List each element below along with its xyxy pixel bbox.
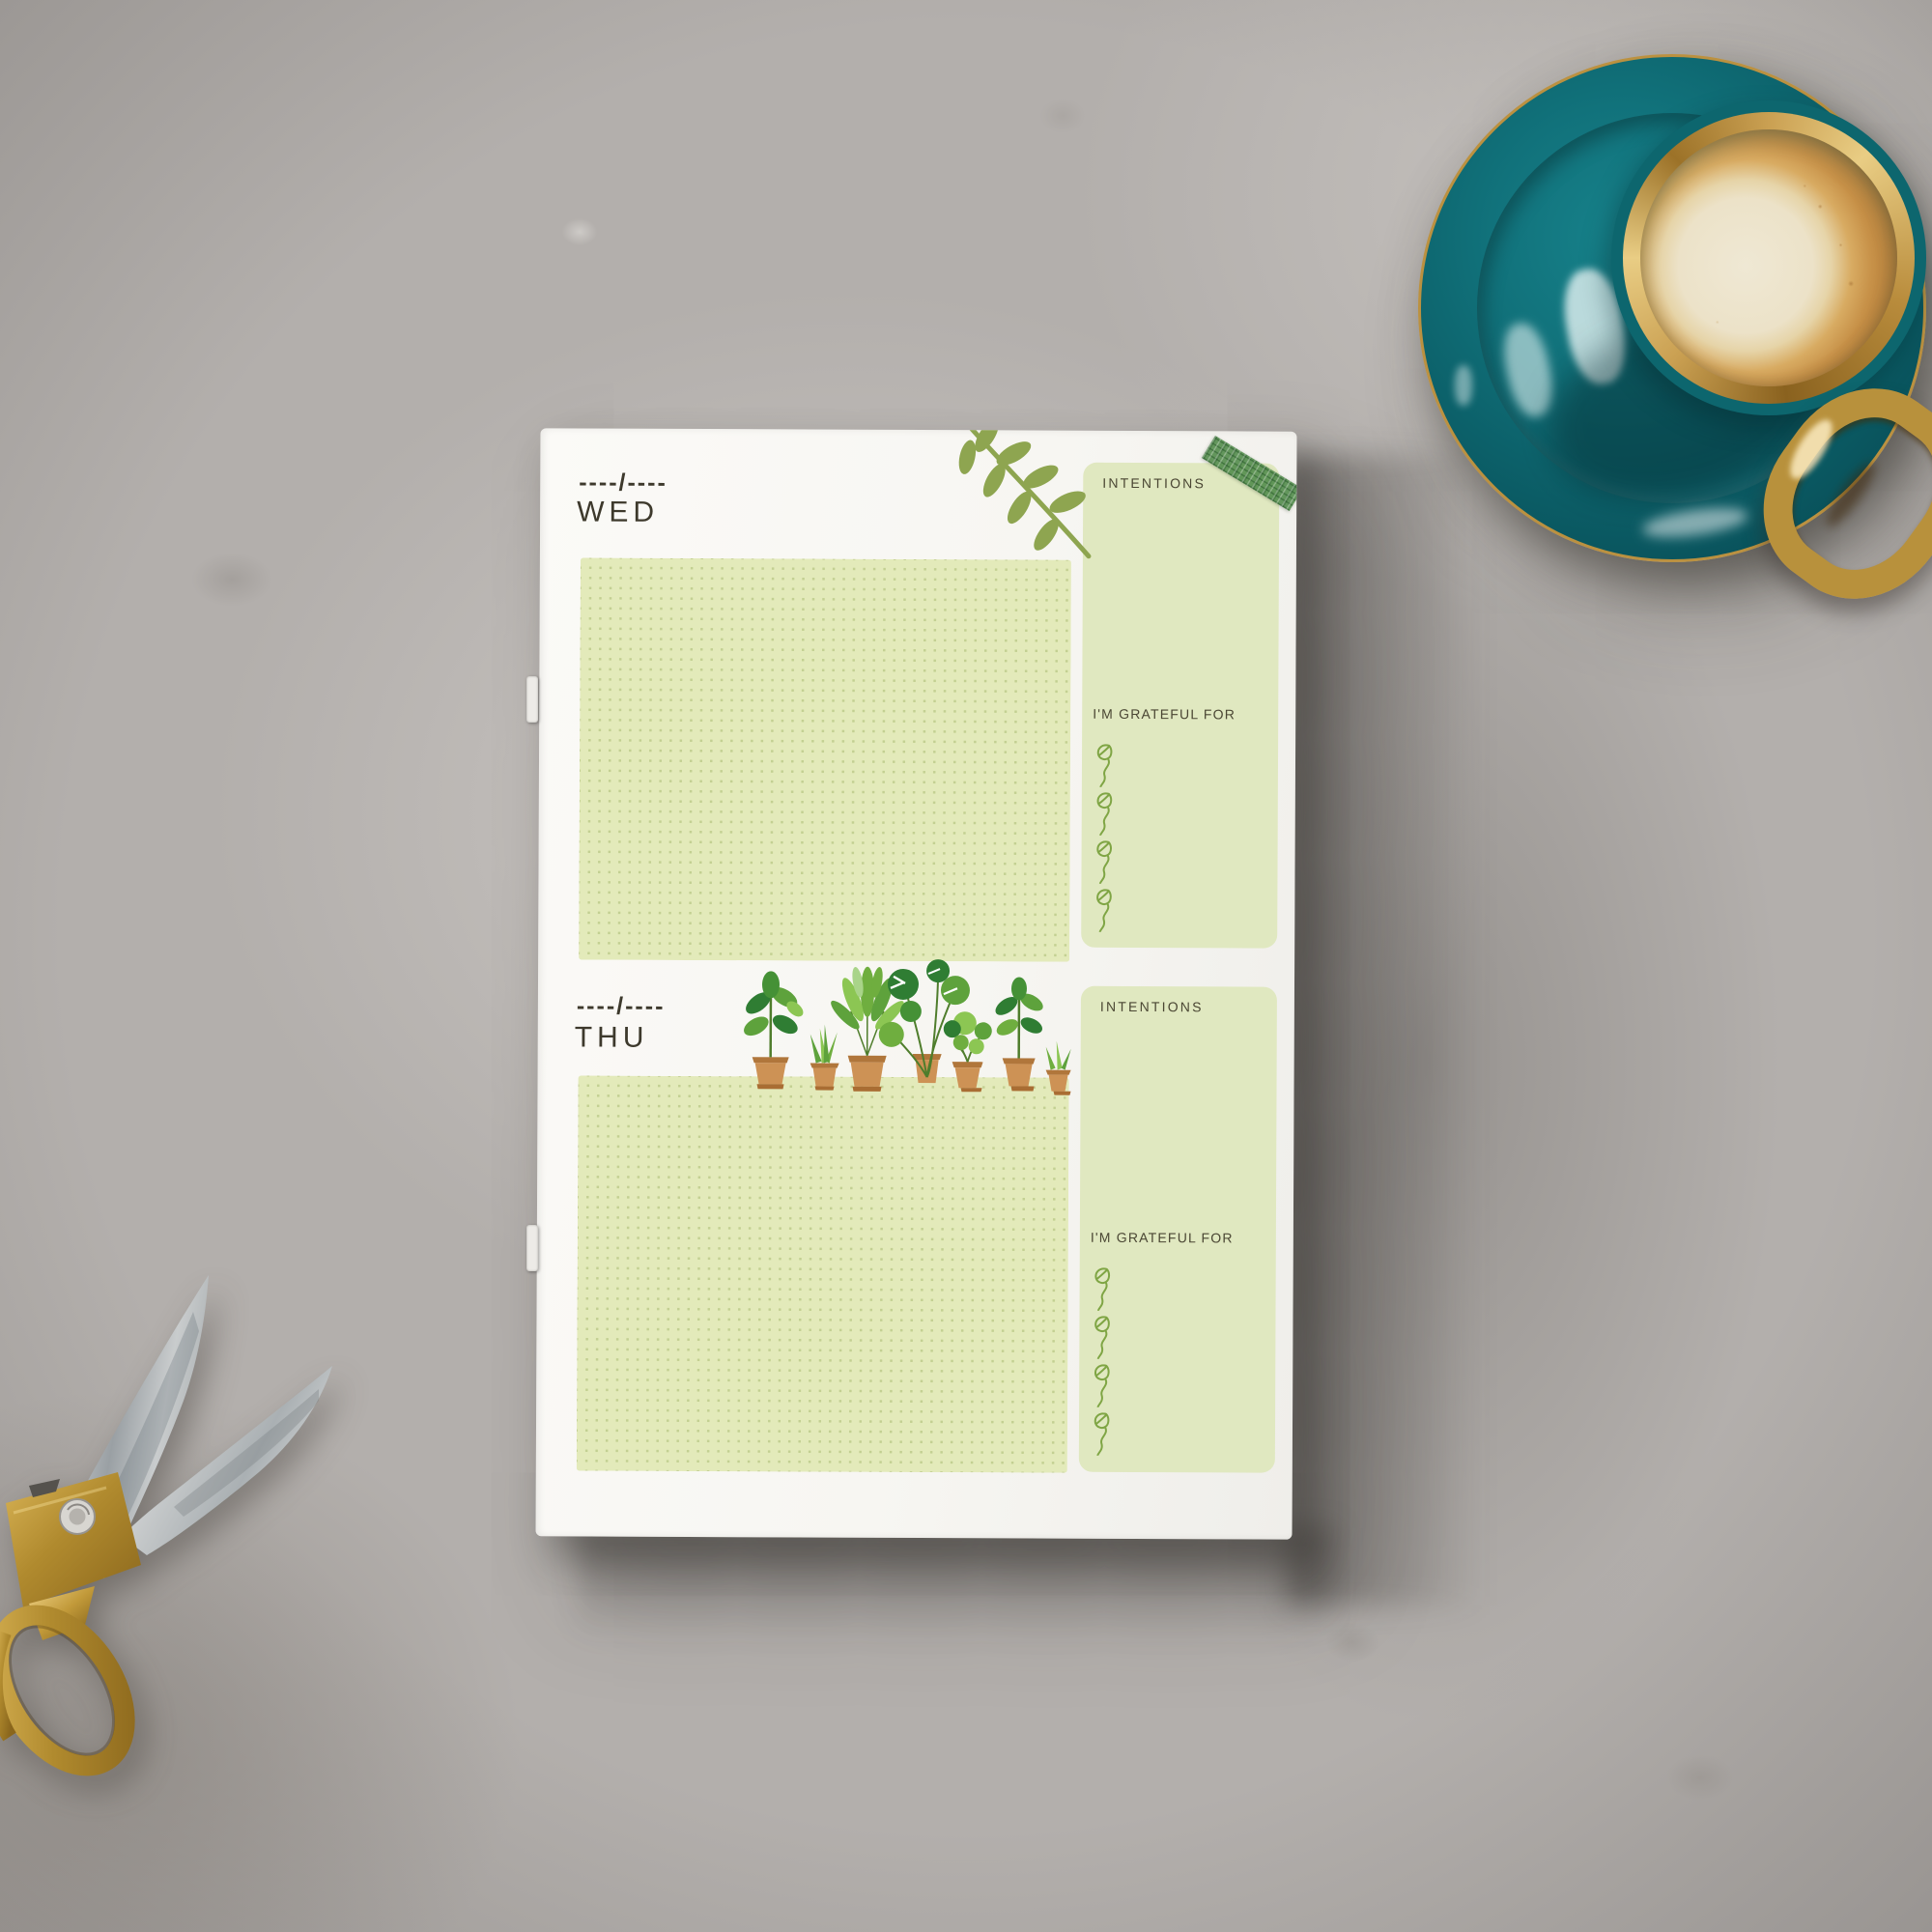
grateful-list [1091, 1266, 1121, 1456]
sprout-icon [1091, 1411, 1120, 1456]
sprout-icon [1093, 839, 1122, 884]
sprout-icon [1094, 791, 1122, 836]
notes-dot-grid [577, 1075, 1069, 1472]
sprout-icon [1091, 1315, 1120, 1359]
staple [526, 1225, 538, 1271]
day-label: THU [575, 1023, 649, 1052]
staple [526, 676, 538, 723]
scissors [0, 1254, 344, 1833]
sprout-icon [1093, 888, 1122, 932]
intentions-panel: INTENTIONS I'M GRATEFUL FOR [1079, 986, 1277, 1473]
grateful-label: I'M GRATEFUL FOR [1091, 1230, 1234, 1246]
notes-dot-grid [579, 557, 1071, 961]
date-field: ----/---- [577, 994, 666, 1018]
intentions-label: INTENTIONS [1102, 475, 1206, 491]
coffee-cup [1611, 100, 1926, 415]
saucer-highlight [1455, 365, 1472, 406]
leaf-branch-icon [953, 428, 1101, 560]
intentions-label: INTENTIONS [1100, 999, 1204, 1014]
potted-plants-illustration [728, 952, 1079, 1101]
day-label: WED [577, 497, 659, 526]
sprout-icon [1092, 1266, 1121, 1311]
grateful-label: I'M GRATEFUL FOR [1093, 706, 1236, 723]
planner-page: ----/---- WED INTENTIONS I'M GRATEFUL FO… [536, 428, 1297, 1539]
sprout-icon [1094, 743, 1122, 787]
page-shadow-right [1287, 456, 1548, 1605]
concrete-background: ----/---- WED INTENTIONS I'M GRATEFUL FO… [0, 0, 1932, 1932]
date-field: ----/---- [579, 470, 668, 495]
day-section-thu: ----/---- THU [541, 428, 1297, 431]
sprout-icon [1091, 1363, 1120, 1407]
grateful-list [1093, 743, 1122, 932]
day-section-wed: ----/---- WED INTENTIONS I'M GRATEFUL FO… [541, 428, 1297, 431]
intentions-panel: INTENTIONS I'M GRATEFUL FOR [1081, 463, 1279, 949]
latte-foam [1640, 129, 1897, 386]
page-shadow-bottom [580, 1528, 1333, 1673]
